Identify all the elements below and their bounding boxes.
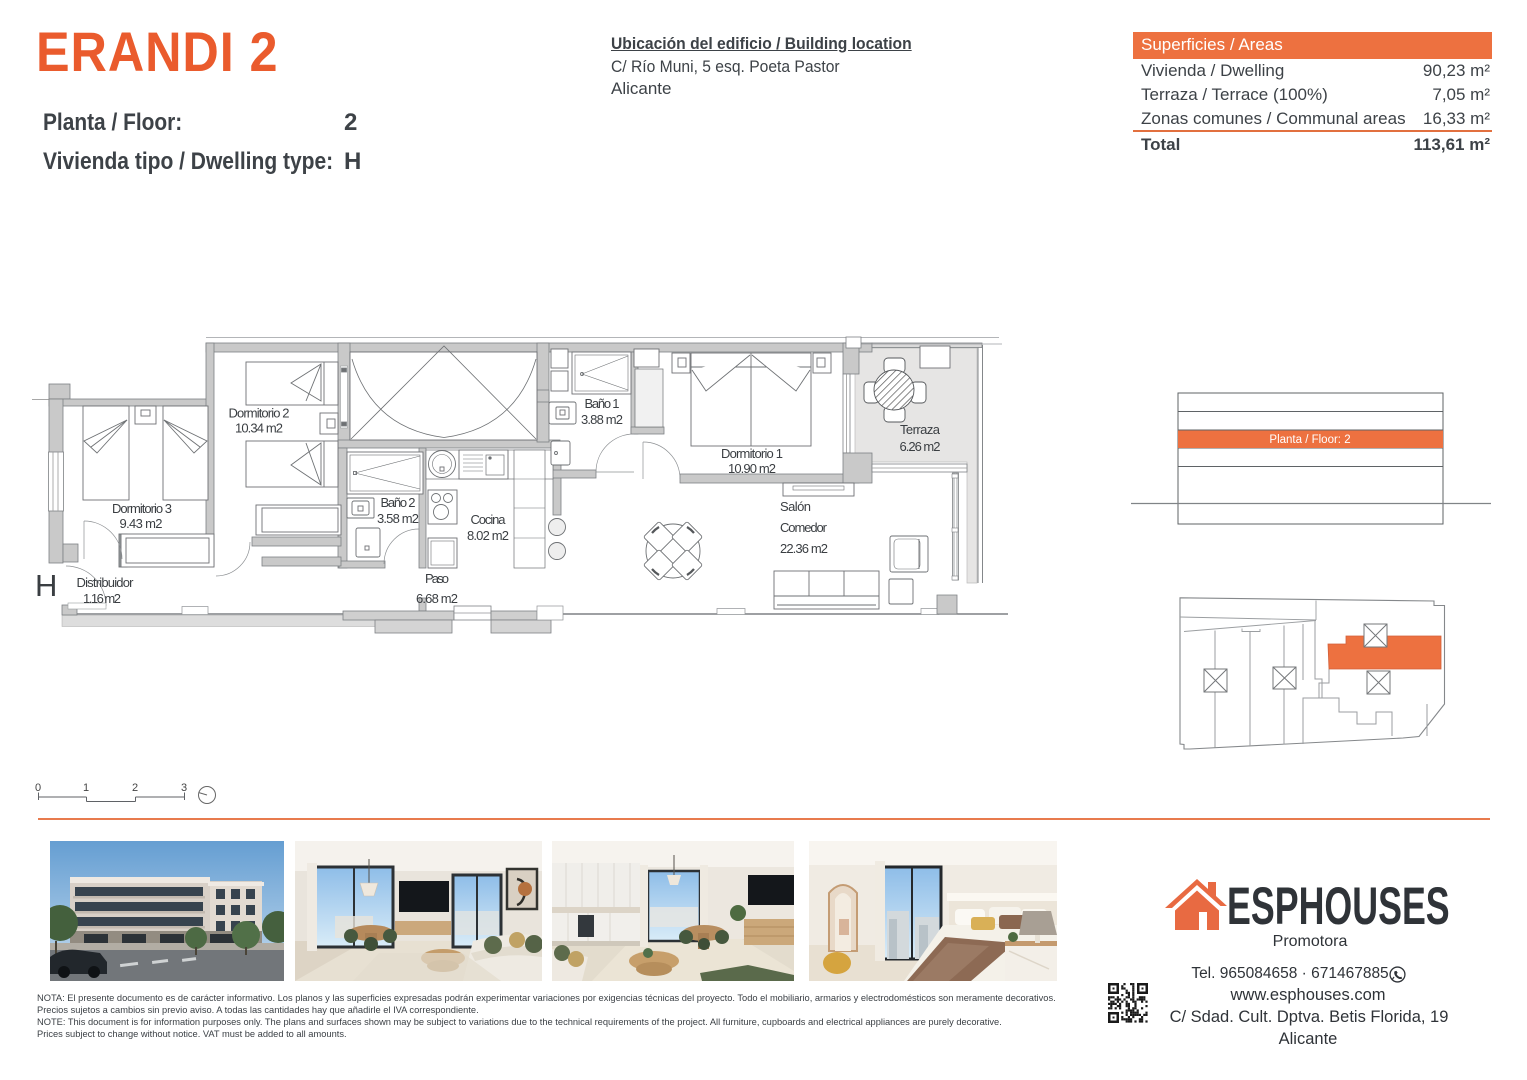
svg-text:Baño 1: Baño 1 — [585, 396, 620, 411]
svg-text:9.43 m2: 9.43 m2 — [120, 516, 163, 531]
svg-text:Dormitorio 2: Dormitorio 2 — [229, 406, 290, 421]
svg-text:2: 2 — [132, 782, 138, 794]
svg-text:10.34 m2: 10.34 m2 — [235, 421, 283, 436]
svg-text:Cocina: Cocina — [471, 512, 507, 527]
svg-text:3.58 m2: 3.58 m2 — [377, 511, 419, 526]
svg-text:22.36 m2: 22.36 m2 — [780, 541, 828, 556]
svg-text:Baño 2: Baño 2 — [381, 495, 416, 510]
svg-text:3: 3 — [181, 782, 187, 794]
svg-text:Distribuidor: Distribuidor — [77, 575, 135, 590]
svg-text:Comedor: Comedor — [780, 520, 828, 535]
svg-text:10.90 m2: 10.90 m2 — [728, 461, 776, 476]
svg-text:Planta / Floor: 2: Planta / Floor: 2 — [1269, 434, 1350, 446]
svg-text:Terraza: Terraza — [900, 422, 941, 437]
svg-text:6.26 m2: 6.26 m2 — [900, 439, 941, 454]
svg-text:1.16 m2: 1.16 m2 — [83, 591, 121, 606]
svg-text:Dormitorio 3: Dormitorio 3 — [112, 501, 172, 516]
svg-text:Salón: Salón — [780, 499, 811, 514]
svg-text:H: H — [35, 568, 57, 603]
svg-text:1: 1 — [83, 782, 89, 794]
svg-text:3.88 m2: 3.88 m2 — [581, 412, 623, 427]
svg-text:8.02 m2: 8.02 m2 — [467, 528, 509, 543]
svg-text:0: 0 — [35, 782, 41, 794]
svg-text:6.68 m2: 6.68 m2 — [416, 591, 458, 606]
svg-text:Dormitorio 1: Dormitorio 1 — [721, 446, 783, 461]
svg-text:Paso: Paso — [425, 571, 449, 586]
